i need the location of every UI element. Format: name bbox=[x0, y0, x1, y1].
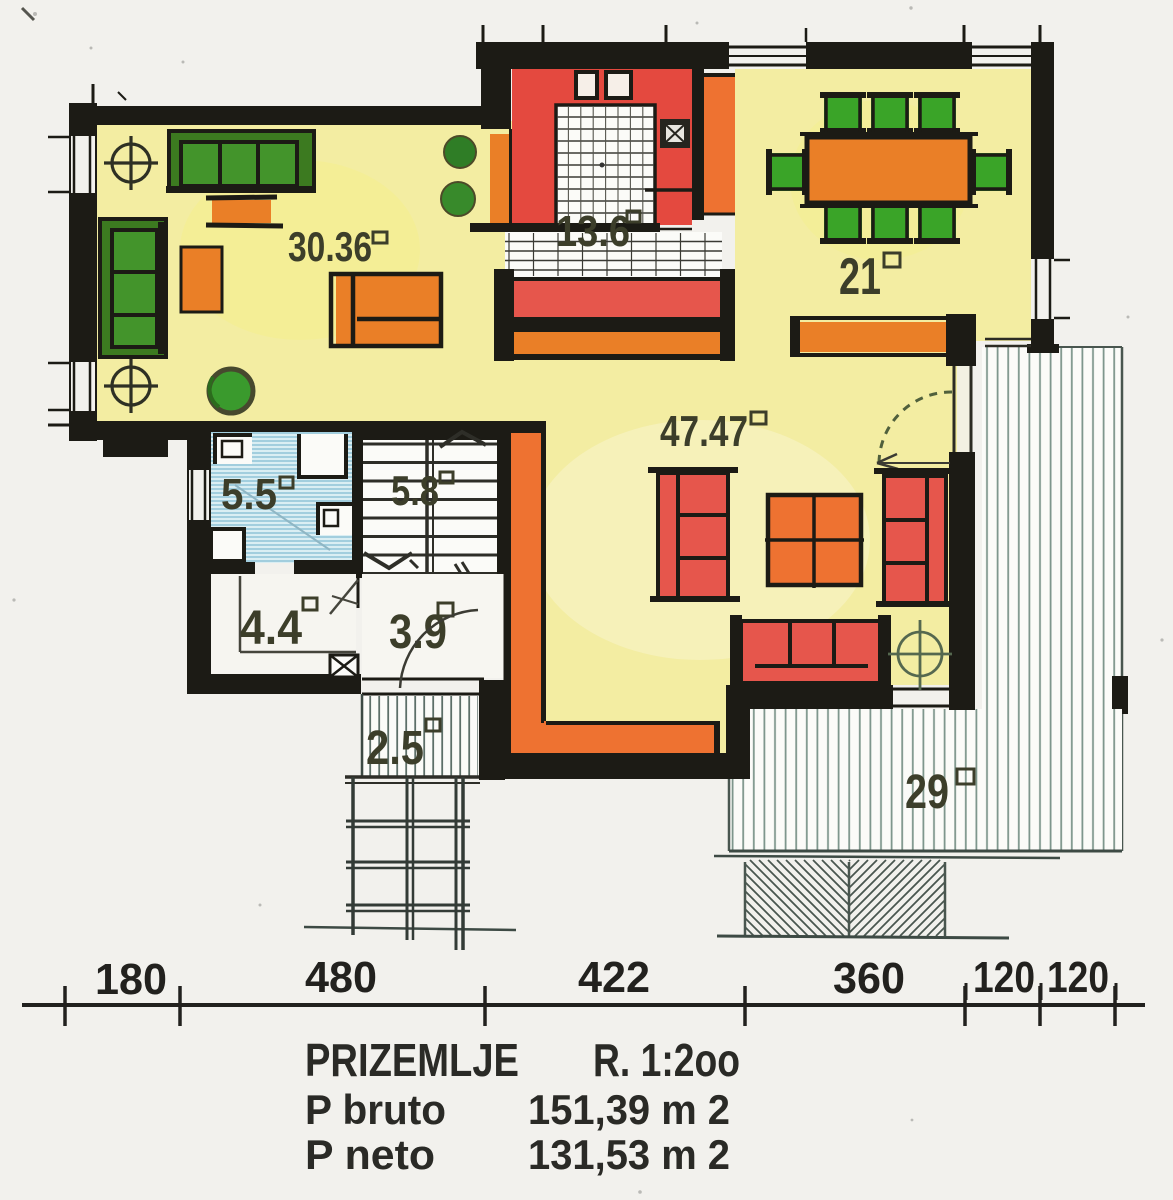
svg-text:131,53 m 2: 131,53 m 2 bbox=[528, 1131, 730, 1178]
svg-text:360: 360 bbox=[833, 954, 905, 1003]
svg-text:P neto: P neto bbox=[305, 1131, 435, 1178]
svg-text:P bruto: P bruto bbox=[305, 1086, 446, 1133]
svg-text:29: 29 bbox=[905, 766, 949, 819]
svg-text:120: 120 bbox=[1047, 953, 1109, 1002]
svg-text:R. 1:2oo: R. 1:2oo bbox=[593, 1034, 740, 1086]
svg-text:120: 120 bbox=[973, 953, 1035, 1002]
svg-text:180: 180 bbox=[95, 955, 167, 1004]
svg-text:5.5: 5.5 bbox=[221, 470, 277, 519]
svg-text:480: 480 bbox=[305, 953, 377, 1002]
svg-text:21: 21 bbox=[839, 248, 881, 306]
svg-text:422: 422 bbox=[578, 953, 650, 1002]
svg-text:47.47: 47.47 bbox=[660, 407, 748, 456]
svg-text:5.8: 5.8 bbox=[391, 467, 439, 514]
svg-text:2.5: 2.5 bbox=[366, 722, 424, 775]
svg-text:151,39 m 2: 151,39 m 2 bbox=[528, 1086, 730, 1133]
svg-text:PRIZEMLJE: PRIZEMLJE bbox=[305, 1034, 519, 1086]
svg-text:13.6: 13.6 bbox=[556, 207, 630, 256]
svg-text:30.36: 30.36 bbox=[288, 223, 372, 270]
svg-text:4.4: 4.4 bbox=[240, 602, 302, 655]
